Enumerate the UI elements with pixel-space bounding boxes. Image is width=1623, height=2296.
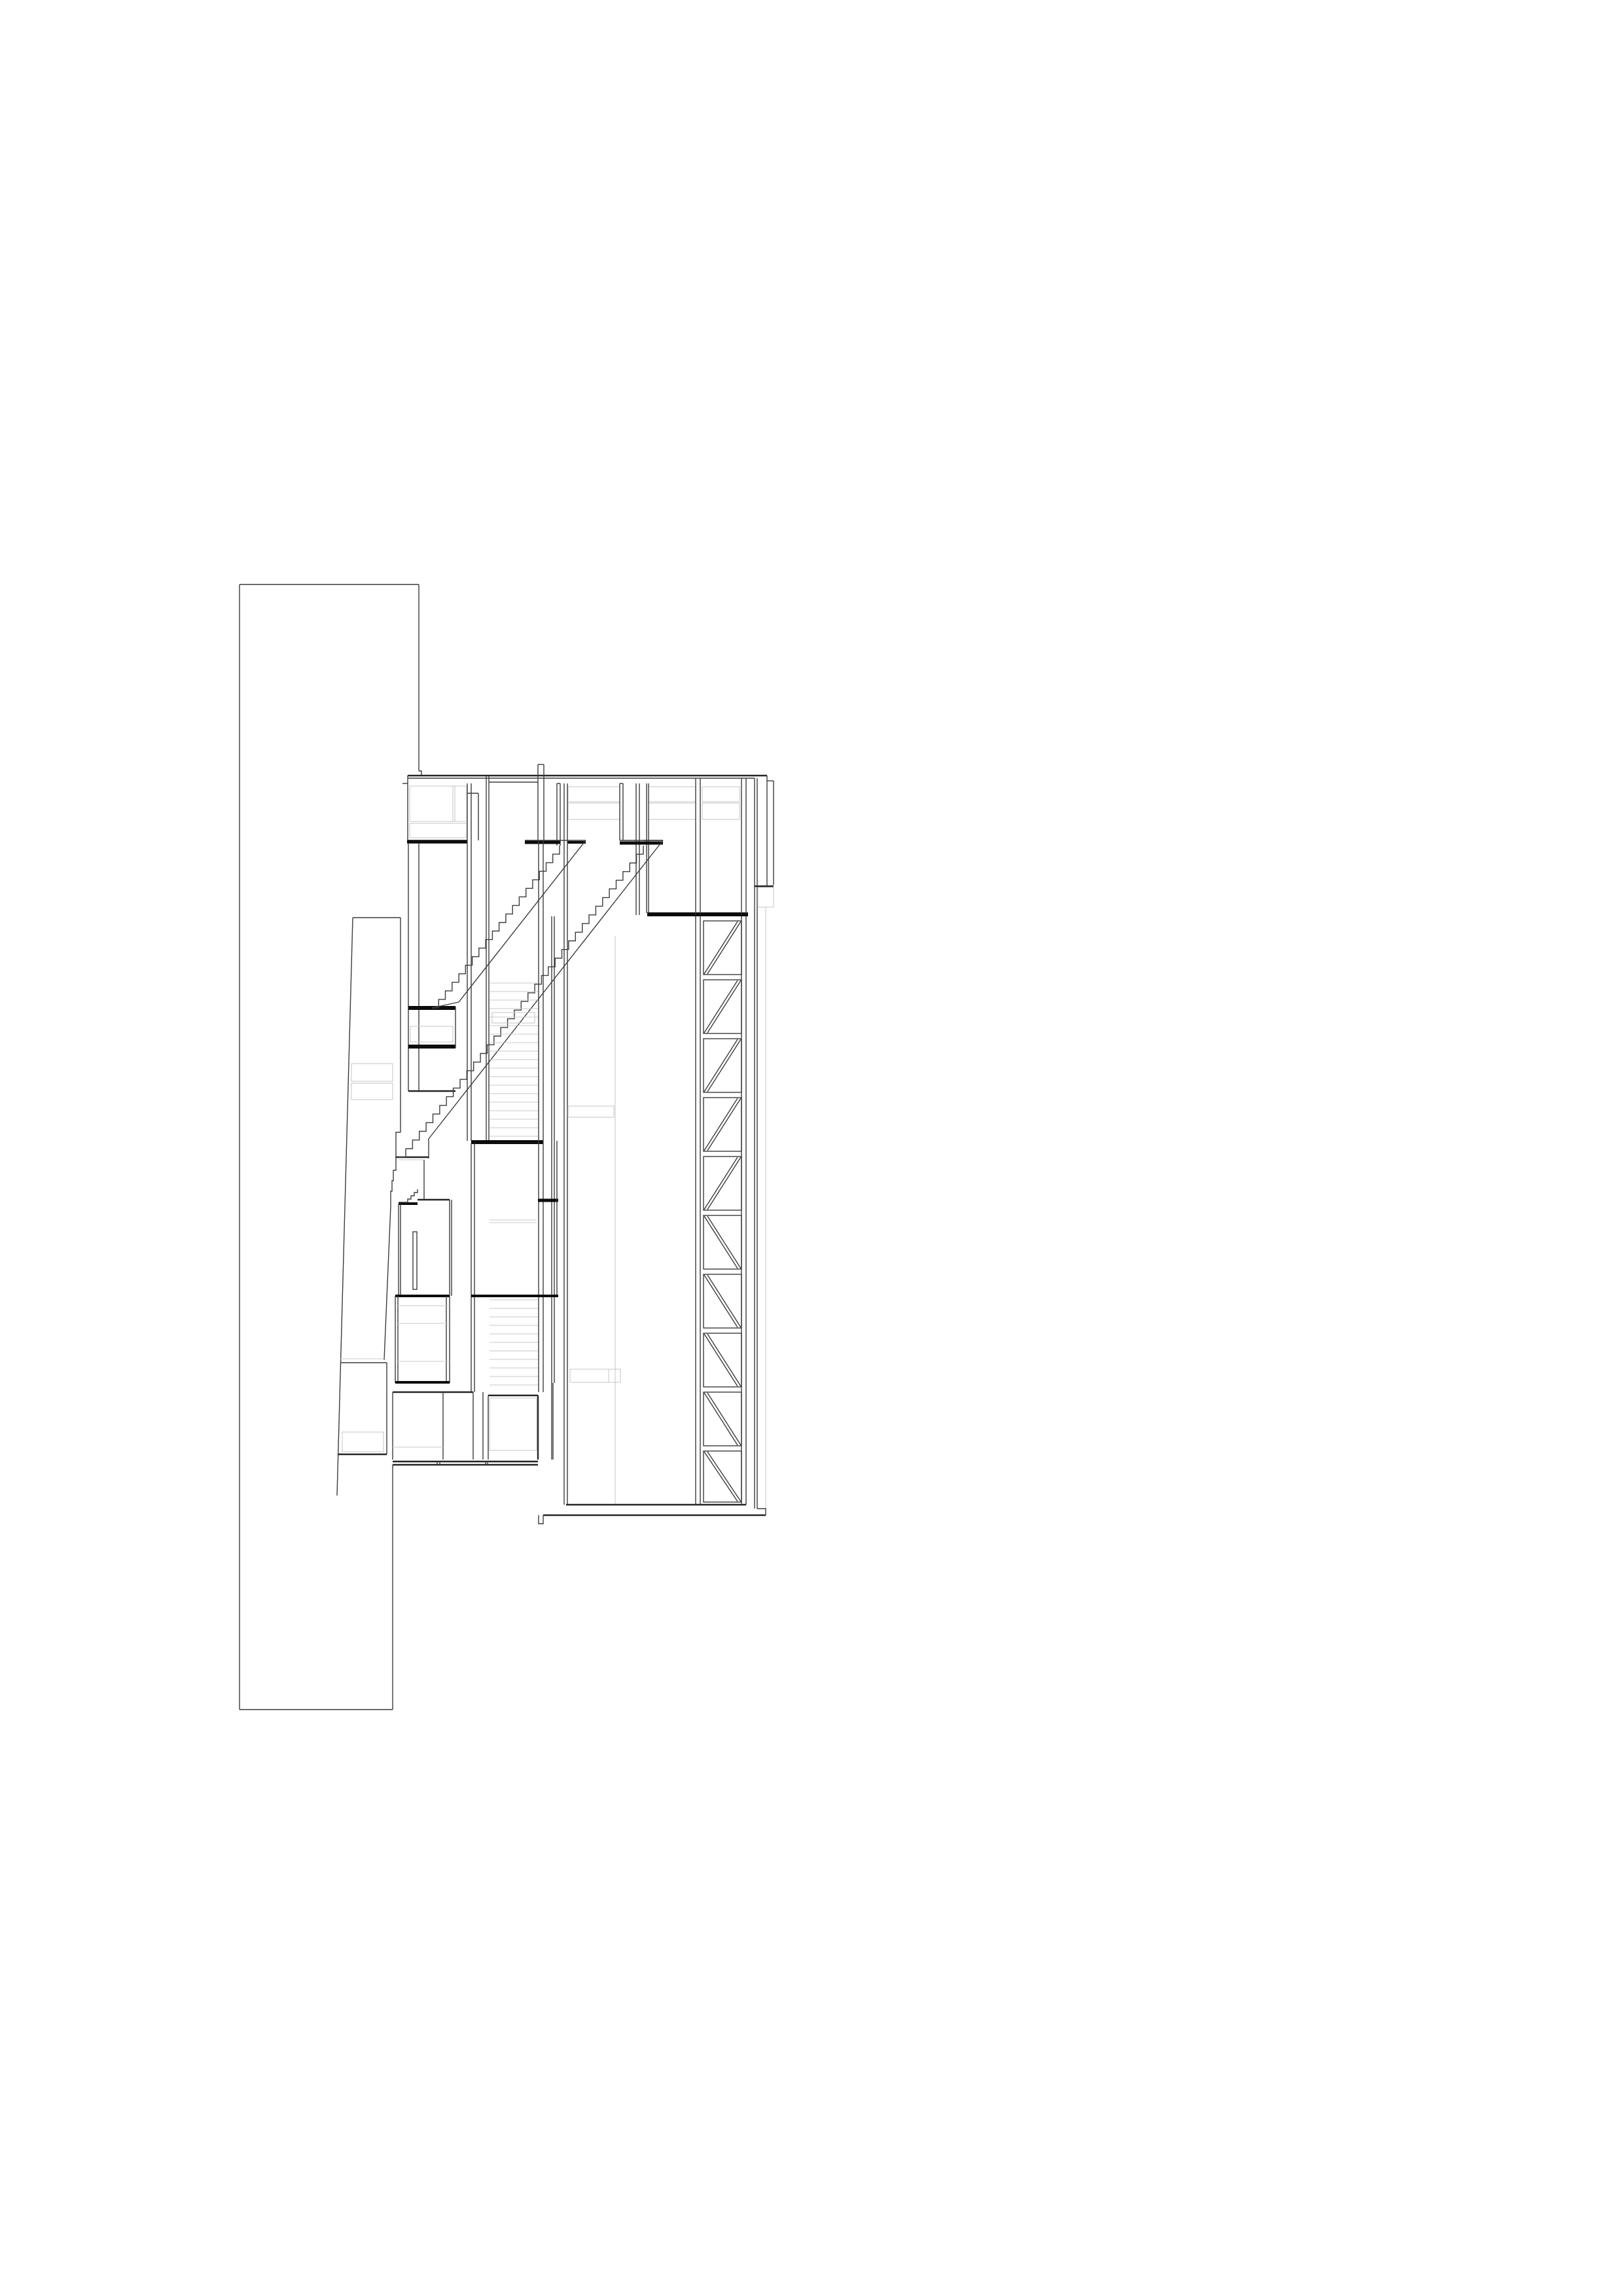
upper-floor-rect <box>702 787 740 802</box>
escalator-a-line <box>459 840 586 1002</box>
upper-floor-rect <box>702 803 740 819</box>
hall-rect <box>570 1369 620 1382</box>
group-upper-floor <box>407 764 748 1141</box>
group-lower-rooms <box>393 1383 553 1465</box>
truss-column-cell <box>707 1334 741 1386</box>
escalator-b-poly <box>399 1149 406 1157</box>
truss-column-cell <box>707 1452 741 1501</box>
group-left-slab <box>240 584 421 1710</box>
tilted-tower-rect <box>351 1064 393 1081</box>
truss-column-cell <box>707 1393 741 1445</box>
truss-column-cell <box>707 1157 741 1210</box>
right-facade-rect <box>758 888 774 907</box>
left-facade-rect <box>410 1026 453 1042</box>
truss-column-cell <box>707 1039 741 1092</box>
truss-column-cell <box>704 1275 738 1327</box>
truss-column-cell <box>704 1216 738 1268</box>
ground-poly <box>757 1509 766 1515</box>
group-ground <box>539 1509 766 1524</box>
group-right-facade <box>755 776 774 1509</box>
truss-column-cell <box>707 1098 741 1151</box>
truss-column-cell <box>704 922 738 974</box>
lower-rooms-rect <box>490 1398 537 1450</box>
truss-column-cell <box>704 1334 738 1386</box>
truss-column-cell <box>704 1098 738 1151</box>
tilted-tower-line <box>337 918 353 1496</box>
upper-floor-rect <box>568 803 620 819</box>
escalator-a-stair <box>432 846 560 1008</box>
truss-column-cell <box>704 1393 738 1445</box>
group-left-facade <box>408 843 455 1091</box>
mid-rooms-poly <box>399 1189 418 1202</box>
group-roof <box>402 776 767 840</box>
group-tilted-tower <box>337 918 401 1496</box>
group-mid-rooms <box>395 1189 452 1383</box>
tilted-tower-poly <box>391 1160 396 1206</box>
upper-floor-rect <box>649 803 696 819</box>
group-stair-shaft <box>471 776 558 1392</box>
truss-column-cell <box>704 1452 738 1501</box>
page-canvas <box>0 0 1623 2296</box>
stair-shaft-rect <box>492 1013 535 1023</box>
upper-floor-rect <box>649 787 696 802</box>
group-truss-column <box>696 916 746 1505</box>
upper-floor-rect <box>410 786 467 821</box>
truss-column-cell <box>707 1275 741 1327</box>
tilted-tower-poly <box>396 1132 401 1160</box>
truss-column-cell <box>704 1039 738 1092</box>
mid-rooms-rect <box>413 1232 417 1289</box>
escalator-b-line <box>429 840 663 1139</box>
upper-floor-rect <box>568 787 620 802</box>
truss-column-cell <box>707 922 741 974</box>
tilted-tower-rect <box>351 1083 393 1100</box>
tilted-tower-line <box>384 1206 391 1360</box>
tilted-tower-rect <box>342 1432 383 1452</box>
upper-floor-rect <box>410 823 467 838</box>
truss-column-cell <box>707 1216 741 1268</box>
escalator-b-stair <box>406 846 643 1149</box>
ground-poly <box>539 1515 543 1524</box>
truss-column-cell <box>704 980 738 1033</box>
group-hall <box>564 783 746 1505</box>
truss-column-cell <box>707 980 741 1033</box>
truss-column-cell <box>704 1157 738 1210</box>
hall-rect <box>568 1106 614 1117</box>
architectural-section-drawing <box>0 0 1623 2296</box>
group-escalator-b <box>396 840 663 1200</box>
